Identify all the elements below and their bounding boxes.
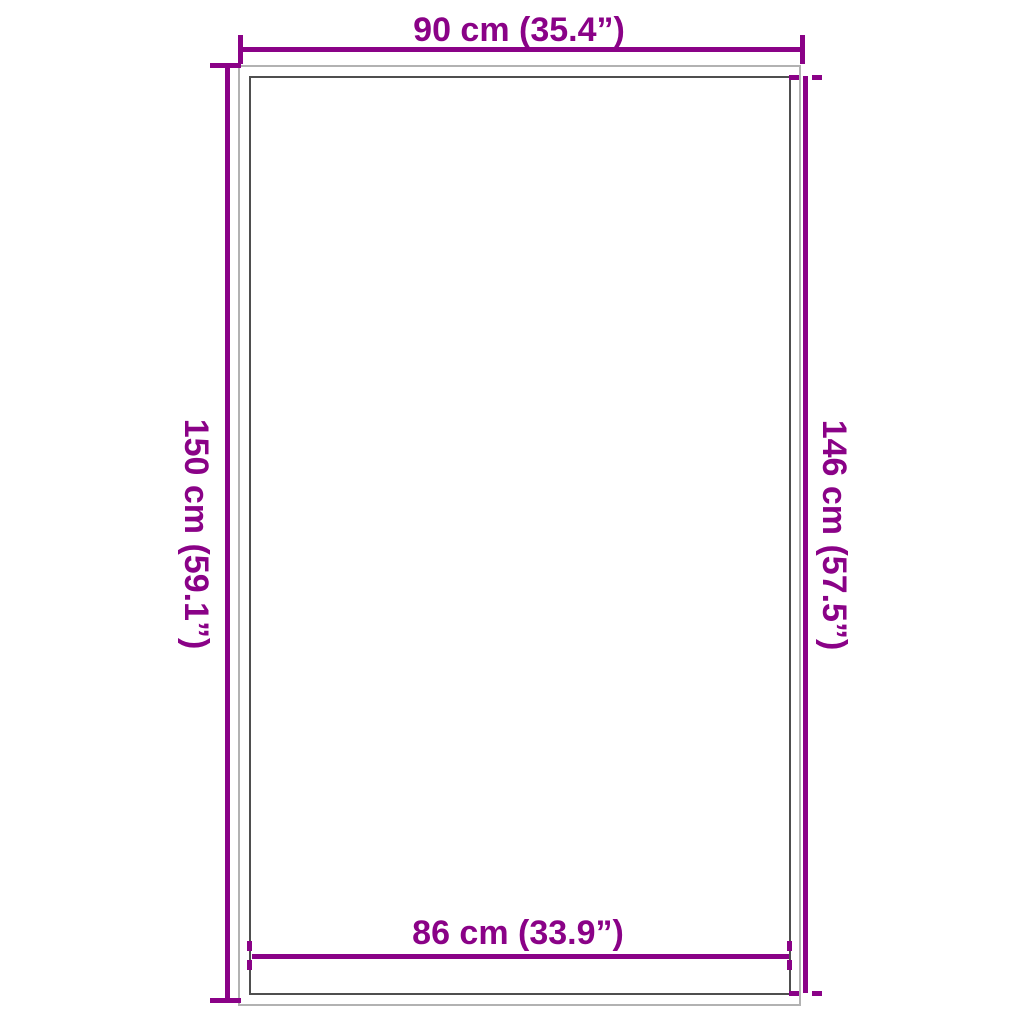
bottom-dimension-dash-left-upper [247,941,252,951]
left-dimension-tick-bottom [210,998,241,1003]
bottom-dimension-line [252,954,789,959]
right-dimension-label: 146 cm (57.5”) [817,420,851,651]
right-dimension-dash-top-left [789,75,799,80]
top-dimension-tick-right [800,35,805,64]
top-dimension-tick-left [238,35,243,64]
top-dimension-label: 90 cm (35.4”) [413,13,625,47]
left-dimension-tick-top [210,63,241,68]
right-dimension-dash-bottom-left [789,991,799,996]
bottom-dimension-label: 86 cm (33.9”) [412,916,624,950]
right-dimension-dash-bottom-right [812,991,822,996]
dimension-diagram: 90 cm (35.4”) 150 cm (59.1”) 146 cm (57.… [0,0,1024,1024]
product-inner-outline [249,76,791,995]
bottom-dimension-dash-left-lower [247,960,252,970]
bottom-dimension-dash-right-upper [787,941,792,951]
right-dimension-line [803,76,808,993]
left-dimension-label: 150 cm (59.1”) [179,419,213,650]
left-dimension-line [225,64,230,1001]
bottom-dimension-dash-right-lower [787,960,792,970]
right-dimension-dash-top-right [812,75,822,80]
